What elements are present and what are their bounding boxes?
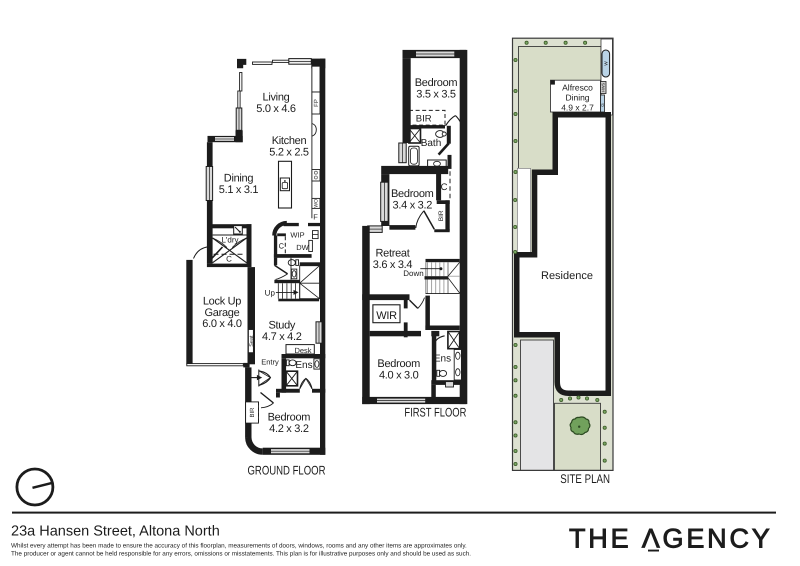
- svg-text:Retreat: Retreat: [376, 248, 410, 260]
- svg-text:L'dry: L'dry: [221, 236, 238, 245]
- svg-text:HWS: HWS: [601, 83, 606, 93]
- svg-text:GROUND FLOOR: GROUND FLOOR: [248, 463, 326, 477]
- svg-text:DW: DW: [296, 243, 309, 252]
- svg-text:C: C: [441, 182, 448, 193]
- svg-text:Desk: Desk: [294, 346, 311, 355]
- svg-text:4.7 x 4.2: 4.7 x 4.2: [262, 331, 302, 343]
- svg-text:C: C: [226, 255, 232, 264]
- svg-text:Up: Up: [265, 288, 276, 297]
- svg-text:Kitchen: Kitchen: [272, 135, 307, 147]
- svg-text:23a Hansen Street, Altona Nort: 23a Hansen Street, Altona North: [11, 524, 220, 540]
- svg-text:Garage: Garage: [205, 307, 240, 319]
- svg-text:Bedroom: Bedroom: [377, 358, 420, 370]
- svg-text:5.1 x 3.1: 5.1 x 3.1: [219, 184, 259, 196]
- svg-text:Bedroom: Bedroom: [268, 412, 311, 424]
- svg-text:Bedroom: Bedroom: [415, 77, 458, 89]
- svg-text:WIR: WIR: [376, 310, 397, 322]
- svg-text:Ens: Ens: [434, 354, 451, 365]
- svg-text:Bath: Bath: [421, 138, 442, 149]
- svg-text:Bedroom: Bedroom: [391, 188, 434, 200]
- svg-text:WIP: WIP: [290, 230, 304, 239]
- svg-text:Whilst every attempt has been: Whilst every attempt has been made to en…: [11, 542, 467, 549]
- svg-text:Alfresco: Alfresco: [562, 82, 593, 92]
- svg-text:3.5 x 3.5: 3.5 x 3.5: [416, 89, 456, 101]
- svg-text:Entry: Entry: [261, 357, 279, 366]
- svg-text:THE ΛGENCY: THE ΛGENCY: [569, 524, 773, 554]
- svg-text:Residence: Residence: [541, 270, 593, 282]
- svg-text:Dining: Dining: [224, 173, 254, 185]
- svg-text:6.0 x 4.0: 6.0 x 4.0: [202, 318, 242, 330]
- svg-text:4.0 x 3.0: 4.0 x 3.0: [379, 370, 419, 382]
- svg-text:Living: Living: [263, 92, 290, 104]
- svg-text:The producer or agent cannot b: The producer or agent cannot be held res…: [11, 550, 471, 557]
- svg-text:G: G: [600, 103, 605, 107]
- svg-text:BIR: BIR: [438, 210, 445, 221]
- svg-text:4.9 x 2.7: 4.9 x 2.7: [561, 102, 594, 112]
- svg-text:BIR: BIR: [416, 113, 432, 124]
- svg-text:BIR: BIR: [249, 407, 256, 418]
- svg-text:Seat: Seat: [249, 335, 255, 347]
- svg-text:WO: WO: [314, 199, 320, 208]
- svg-text:Dining: Dining: [565, 92, 589, 102]
- svg-text:3.4 x 3.2: 3.4 x 3.2: [393, 200, 433, 212]
- svg-text:FIRST FLOOR: FIRST FLOOR: [404, 405, 466, 419]
- svg-text:Lock Up: Lock Up: [203, 296, 241, 308]
- svg-text:5.2 x 2.5: 5.2 x 2.5: [269, 147, 309, 159]
- svg-text:FP: FP: [313, 99, 320, 107]
- svg-text:C: C: [279, 242, 285, 251]
- svg-text:3.6 x 3.4: 3.6 x 3.4: [373, 259, 413, 271]
- svg-text:Ens: Ens: [295, 360, 312, 371]
- svg-text:Study: Study: [268, 320, 295, 332]
- svg-text:SITE PLAN: SITE PLAN: [560, 472, 610, 486]
- svg-text:F: F: [313, 213, 318, 222]
- svg-text:4.2 x 3.2: 4.2 x 3.2: [269, 423, 309, 435]
- svg-text:5.0 x 4.6: 5.0 x 4.6: [256, 103, 296, 115]
